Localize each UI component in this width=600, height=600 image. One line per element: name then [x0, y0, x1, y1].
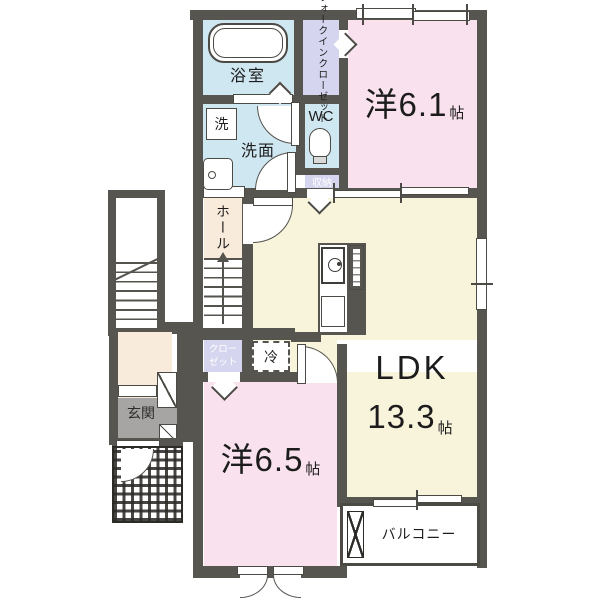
top-window-tick-3	[466, 4, 468, 25]
kitchen-faucet-dot	[337, 262, 341, 266]
wall-under-stairs	[193, 328, 295, 340]
balcony-hatch-icon	[347, 511, 364, 558]
bedroom65-window-leaf-left	[237, 566, 268, 575]
ldk-unit-text: 帖	[438, 417, 453, 441]
bedroom-6-1-unit: 帖	[449, 102, 464, 126]
balcony-label-text: バルコニー	[382, 524, 457, 544]
entrance-label: 玄関	[118, 402, 164, 424]
toilet-base	[313, 156, 327, 164]
bedroom61-ldk-sliding-right	[401, 187, 469, 195]
wall-kitchen-stub	[291, 332, 321, 342]
wall-wic-bedroom61-lower	[339, 58, 348, 196]
kitchen-lower-cabinet	[321, 296, 345, 327]
balcony-window-tick	[416, 490, 418, 510]
bedroom61-top-window-right	[412, 11, 470, 21]
wall-bedroom65-top-mid	[240, 372, 301, 382]
right-window-tick	[471, 283, 493, 285]
bedroom65-door-leaf	[297, 344, 306, 384]
bedroom-6-5-name: 洋6.5	[221, 433, 304, 481]
refrigerator-label-text: 冷	[264, 347, 278, 367]
stairs-exterior-treads	[116, 262, 157, 328]
closet-label-line2: ゼット	[209, 357, 238, 370]
top-window-tick-1	[362, 4, 364, 25]
refrigerator-label: 冷	[252, 341, 290, 372]
ldk-name-label: LDK	[347, 345, 477, 391]
bedroom65-window-arc-left	[240, 575, 268, 598]
sliding-tick-2	[400, 183, 402, 203]
kitchen-drain-rack	[349, 245, 364, 290]
bathtub-icon	[208, 23, 288, 63]
ldk-right-window-upper	[476, 238, 487, 286]
wall-bedroom65-top-left	[193, 372, 208, 382]
bedroom-6-1-label: 洋6.1 帖	[352, 78, 477, 126]
washbasin-icon	[203, 158, 233, 190]
closet-label-line1: クロー	[209, 344, 238, 357]
bedroom-6-5-label: 洋6.5 帖	[204, 432, 337, 482]
balcony-sliding-window-right	[417, 495, 462, 503]
washroom-label-text: 洗面	[241, 137, 275, 161]
hall-label: ホール	[212, 199, 234, 257]
top-window-tick-2	[412, 4, 414, 25]
ldk-size-label: 13.3 帖	[340, 393, 480, 441]
bedroom61-top-window-left	[356, 8, 416, 19]
bathtub-inner-line	[213, 28, 283, 58]
balcony-label: バルコニー	[366, 523, 472, 545]
kitchen-sink-icon	[321, 247, 345, 284]
ldk-size-text: 13.3	[367, 398, 435, 436]
floor-plan: 浴室 ウォークイン クローゼット 洋6.1 帖 洗 洗面 WC 収納 ホール ク…	[0, 0, 600, 600]
entrance-step	[118, 385, 157, 397]
bathroom-label: 浴室	[202, 62, 294, 86]
balcony-sliding-window-left	[373, 499, 418, 507]
wall-entrance-left	[109, 330, 118, 445]
walk-in-closet-label: ウォークイン クローゼット	[303, 21, 339, 95]
washbasin-faucet-dot	[208, 171, 216, 179]
bedroom65-window-arc-right	[273, 575, 301, 598]
bedroom61-ldk-sliding-left	[333, 190, 401, 198]
wall-bath-wic	[294, 10, 303, 104]
bedroom65-window-leaf-right	[273, 566, 304, 575]
bedroom-6-5-unit: 帖	[305, 458, 320, 482]
ldk-right-window-lower	[476, 284, 487, 310]
bathroom-label-text: 浴室	[230, 62, 266, 86]
wall-bedroom65-bottom	[193, 566, 347, 578]
ldk-name-text: LDK	[375, 349, 448, 387]
closet-label: クロー ゼット	[204, 342, 242, 371]
storage-label-text: 収納	[312, 174, 332, 189]
hall-ldk-door-leaf	[253, 197, 293, 206]
wic-label-line1: ウォークイン	[313, 0, 329, 58]
stairs-interior-centerline	[222, 260, 224, 324]
bedroom-6-1-name: 洋6.1	[365, 78, 448, 126]
wc-label-text: WC	[309, 108, 334, 125]
wall-entrance-right	[177, 330, 193, 442]
toilet-icon	[309, 128, 331, 158]
hall-door-opening	[243, 204, 253, 244]
laundry-label: 洗	[206, 108, 237, 140]
storage-label: 収納	[305, 175, 339, 188]
washroom-label: 洗面	[225, 138, 291, 160]
wc-label: WC	[303, 106, 339, 126]
entrance-label-text: 玄関	[127, 403, 155, 423]
wall-wic-bedroom61-upper	[339, 10, 348, 30]
laundry-label-text: 洗	[215, 114, 229, 134]
hall-label-text: ホール	[213, 204, 233, 252]
wc-door-leaf	[291, 102, 300, 146]
